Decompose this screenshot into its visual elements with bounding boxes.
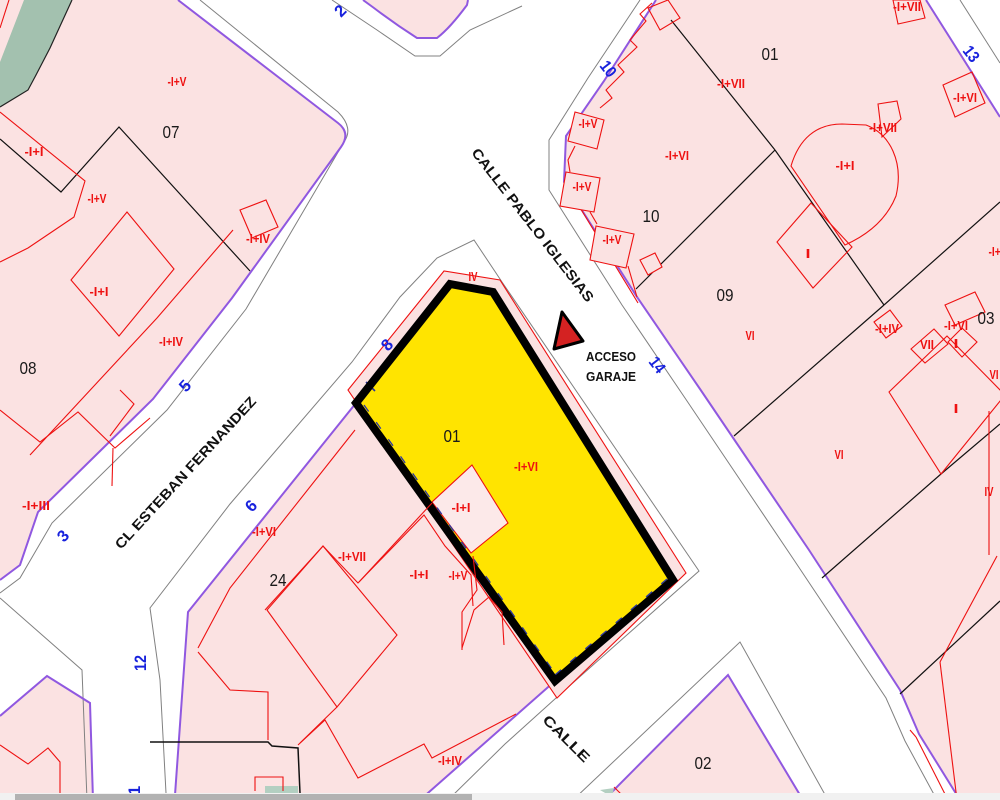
svg-text:-I+III: -I+III bbox=[22, 498, 50, 513]
svg-text:01: 01 bbox=[762, 44, 779, 64]
svg-text:GARAJE: GARAJE bbox=[586, 369, 636, 384]
svg-text:-I+IV: -I+IV bbox=[159, 334, 183, 349]
svg-text:24: 24 bbox=[270, 570, 287, 590]
svg-text:VI: VI bbox=[835, 447, 844, 462]
svg-text:-I+V: -I+V bbox=[989, 244, 1000, 259]
svg-text:-I+V: -I+V bbox=[603, 232, 622, 247]
svg-text:ACCESO: ACCESO bbox=[586, 349, 636, 364]
svg-text:-I+VII: -I+VII bbox=[869, 120, 897, 135]
svg-text:-I+IV: -I+IV bbox=[438, 753, 462, 768]
svg-text:-I+V: -I+V bbox=[579, 116, 598, 131]
svg-text:-I+I: -I+I bbox=[452, 500, 471, 515]
svg-text:-I+VII: -I+VII bbox=[338, 549, 366, 564]
svg-text:I: I bbox=[806, 246, 811, 261]
svg-text:08: 08 bbox=[20, 358, 37, 378]
svg-text:-I+VI: -I+VI bbox=[944, 318, 968, 333]
svg-text:02: 02 bbox=[695, 753, 712, 773]
svg-text:IV: IV bbox=[985, 484, 994, 499]
svg-text:01: 01 bbox=[444, 426, 461, 446]
svg-text:-I+VI: -I+VI bbox=[665, 148, 689, 163]
svg-text:VII: VII bbox=[920, 337, 934, 352]
svg-text:-I+I: -I+I bbox=[410, 567, 429, 582]
svg-text:-I+I: -I+I bbox=[836, 158, 855, 173]
svg-text:-I+I: -I+I bbox=[90, 284, 109, 299]
svg-text:-I+V: -I+V bbox=[573, 179, 592, 194]
svg-text:10: 10 bbox=[643, 206, 660, 226]
svg-text:-I+V: -I+V bbox=[88, 191, 107, 206]
svg-text:I: I bbox=[954, 336, 959, 351]
svg-text:I: I bbox=[954, 401, 959, 416]
svg-text:09: 09 bbox=[717, 285, 734, 305]
svg-text:-I+V: -I+V bbox=[449, 568, 468, 583]
svg-text:-I+VI: -I+VI bbox=[252, 524, 276, 539]
svg-text:-I+IV: -I+IV bbox=[246, 231, 270, 246]
svg-text:-I+VII: -I+VII bbox=[717, 76, 745, 91]
svg-text:VI: VI bbox=[990, 367, 999, 382]
svg-text:-I+VI: -I+VI bbox=[514, 459, 538, 474]
svg-text:-I+V: -I+V bbox=[168, 74, 187, 89]
svg-text:-I+I: -I+I bbox=[25, 144, 44, 159]
svg-text:-I+VI: -I+VI bbox=[953, 90, 977, 105]
svg-text:03: 03 bbox=[978, 308, 995, 328]
svg-text:-I+VII: -I+VII bbox=[893, 0, 921, 14]
svg-text:-I+IV: -I+IV bbox=[875, 321, 899, 336]
svg-text:VI: VI bbox=[746, 328, 755, 343]
svg-text:12: 12 bbox=[132, 655, 150, 671]
svg-text:07: 07 bbox=[163, 122, 180, 142]
svg-text:IV: IV bbox=[469, 269, 478, 284]
